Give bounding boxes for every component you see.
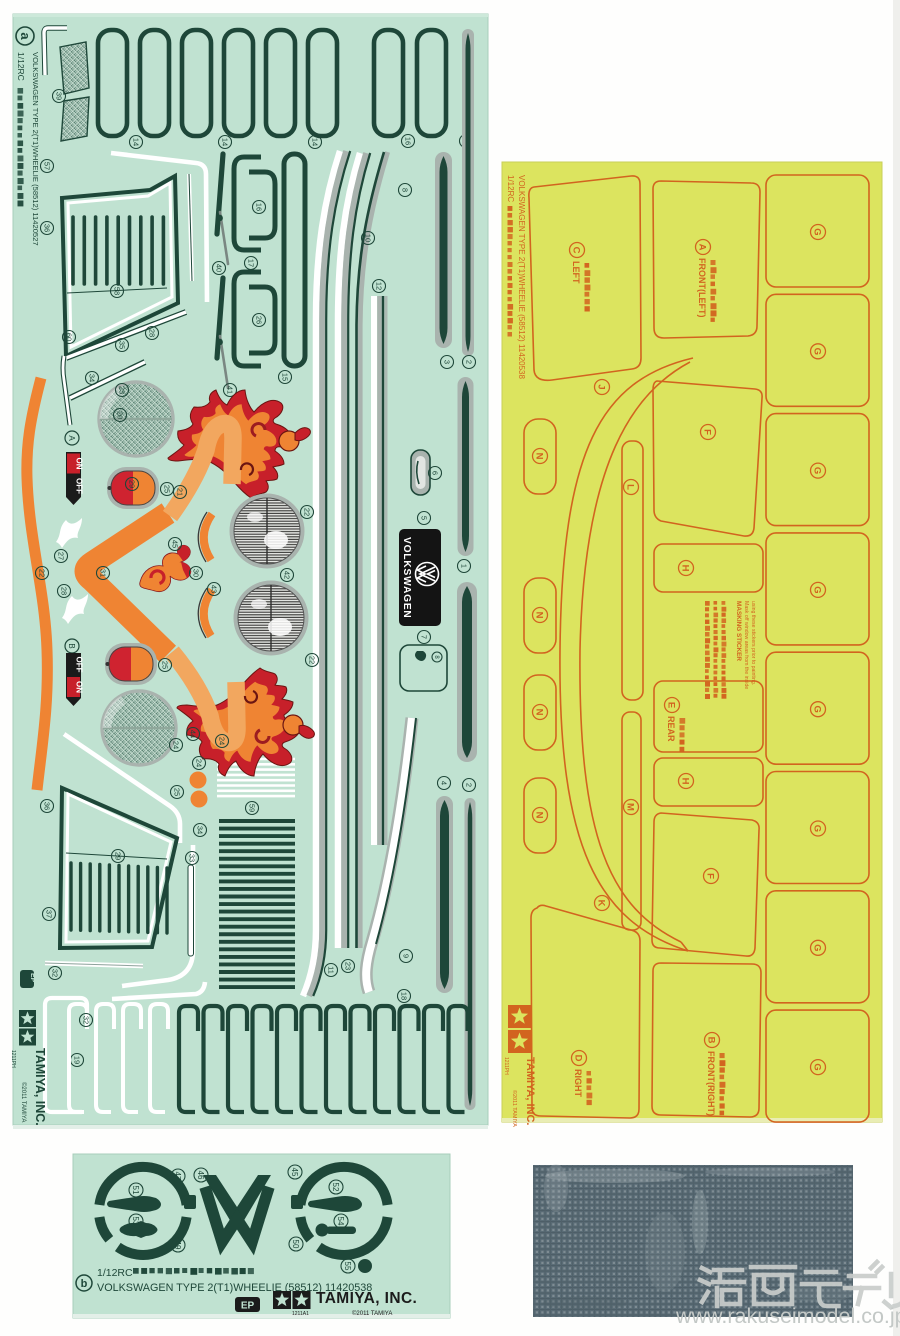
svg-text:K: K [596,900,607,907]
svg-text:31: 31 [98,569,107,577]
svg-text:4: 4 [439,781,448,785]
svg-text:G: G [812,706,823,713]
svg-text:30: 30 [191,569,200,577]
svg-text:OFF: OFF [75,478,84,494]
svg-text:N: N [534,812,545,819]
svg-text:44: 44 [188,730,197,738]
svg-text:1/12RC: 1/12RC [97,1267,133,1279]
svg-text:53: 53 [131,1217,140,1226]
svg-text:25: 25 [162,485,171,493]
svg-text:1211A1: 1211A1 [292,1311,309,1317]
svg-text:12: 12 [374,282,383,290]
svg-text:A: A [697,244,708,251]
svg-text:E: E [666,702,677,708]
svg-text:24: 24 [171,741,180,749]
svg-text:G: G [812,467,823,474]
svg-text:33: 33 [187,854,196,862]
svg-text:25: 25 [172,788,181,796]
svg-text:D: D [573,1055,584,1062]
svg-text:22: 22 [37,569,46,577]
svg-text:H: H [680,565,691,572]
svg-text:2: 2 [464,783,473,787]
svg-text:VOLKSWAGEN TYPE 2(T1)WHEELIE (: VOLKSWAGEN TYPE 2(T1)WHEELIE (58512) 114… [31,52,40,246]
svg-text:23: 23 [343,962,352,970]
svg-text:OFF: OFF [75,657,84,673]
svg-text:1/12RC: 1/12RC [506,175,515,202]
svg-text:www.rakuseimodel.co.jp: www.rakuseimodel.co.jp [675,1304,900,1328]
svg-text:MASKING STICKER: MASKING STICKER [735,601,742,661]
svg-text:N: N [534,709,545,716]
svg-text:22: 22 [302,508,311,516]
svg-text:41: 41 [225,386,234,394]
svg-text:C: C [571,247,582,254]
svg-text:using these stickers prior to: using these stickers prior to painting. [750,601,756,685]
svg-text:25: 25 [160,661,169,669]
svg-text:M: M [625,803,636,811]
svg-text:55: 55 [343,1262,352,1271]
svg-text:15: 15 [280,373,289,381]
svg-text:LEFT: LEFT [571,261,581,284]
svg-text:11: 11 [326,966,335,974]
svg-text:ON: ON [75,458,84,470]
svg-text:ON: ON [75,681,84,693]
svg-text:32: 32 [81,1016,90,1024]
svg-text:22: 22 [307,656,316,664]
svg-text:TAMIYA, INC.: TAMIYA, INC. [524,1057,536,1125]
svg-text:49: 49 [173,1241,182,1250]
svg-text:B: B [67,643,76,648]
svg-text:1211PH: 1211PH [503,1057,509,1075]
svg-text:A: A [67,435,76,441]
svg-text:B: B [706,1037,717,1044]
svg-text:RIGHT: RIGHT [573,1069,583,1098]
svg-text:VOLKSWAGEN TYPE 2(T1)WHEELIE (: VOLKSWAGEN TYPE 2(T1)WHEELIE (58512) 114… [517,175,526,379]
svg-text:32: 32 [50,969,59,977]
svg-text:36: 36 [42,802,51,810]
svg-text:FRONT(LEFT): FRONT(LEFT) [697,258,707,317]
svg-text:©2011 TAMIYA: ©2011 TAMIYA [20,1082,27,1122]
svg-text:1/12RC: 1/12RC [16,52,26,81]
svg-text:24: 24 [194,759,203,767]
svg-text:27: 27 [56,552,65,560]
svg-text:52: 52 [331,1183,340,1192]
svg-text:28: 28 [59,587,68,595]
svg-text:23: 23 [117,386,126,394]
svg-text:35: 35 [117,341,126,349]
svg-text:G: G [812,825,823,832]
svg-text:Mask off window areas from the: Mask off window areas from the inside [743,601,749,689]
svg-text:29: 29 [113,852,122,860]
svg-text:36: 36 [42,224,51,232]
svg-text:43: 43 [209,585,218,593]
svg-text:40: 40 [214,264,223,272]
svg-text:F: F [705,873,716,879]
svg-text:1: 1 [459,564,468,568]
svg-text:29: 29 [127,480,136,488]
svg-text:G: G [812,944,823,951]
svg-text:18: 18 [399,992,408,1000]
svg-text:REAR: REAR [666,716,676,742]
svg-text:58: 58 [112,287,121,295]
svg-text:16: 16 [403,137,412,145]
svg-text:19: 19 [72,1056,81,1064]
svg-text:FRONT(RIGHT): FRONT(RIGHT) [706,1051,716,1116]
svg-text:L: L [625,484,636,490]
svg-text:26: 26 [254,316,263,324]
svg-text:H: H [680,778,691,785]
svg-text:37: 37 [44,910,53,918]
svg-text:G: G [812,228,823,235]
svg-text:G: G [812,1063,823,1070]
svg-text:N: N [534,612,545,619]
svg-text:VOLKSWAGEN: VOLKSWAGEN [401,537,412,619]
svg-text:1211PH: 1211PH [10,1050,16,1068]
svg-text:6: 6 [430,471,439,475]
svg-text:G: G [812,348,823,355]
svg-text:17: 17 [246,259,255,267]
svg-text:©2011 TAMIYA: ©2011 TAMIYA [511,1090,518,1127]
svg-text:28: 28 [147,329,156,337]
svg-text:10: 10 [363,234,372,242]
svg-text:8: 8 [400,188,409,192]
svg-text:45: 45 [290,1168,299,1177]
svg-text:14: 14 [131,138,140,146]
svg-text:60: 60 [64,333,73,341]
svg-text:46: 46 [196,1171,205,1180]
svg-text:34: 34 [87,374,96,382]
svg-text:G: G [812,586,823,593]
svg-text:2: 2 [464,360,473,364]
svg-text:24: 24 [217,737,226,745]
svg-text:51: 51 [131,1186,140,1195]
svg-text:50: 50 [291,1240,300,1249]
svg-text:57: 57 [42,162,51,170]
svg-text:54: 54 [336,1217,345,1226]
svg-text:EP: EP [241,1301,255,1312]
svg-text:14: 14 [220,138,229,146]
svg-text:©2011 TAMIYA: ©2011 TAMIYA [352,1310,392,1317]
svg-text:21: 21 [175,488,184,496]
svg-text:47: 47 [173,1172,182,1181]
svg-text:16: 16 [254,203,263,211]
svg-text:TAMIYA, INC.: TAMIYA, INC. [33,1048,47,1126]
svg-text:9: 9 [401,954,410,958]
svg-text:TAMIYA, INC.: TAMIYA, INC. [316,1290,417,1307]
svg-text:45: 45 [170,540,179,548]
svg-text:7: 7 [419,635,428,639]
svg-text:14: 14 [310,138,319,146]
svg-text:34: 34 [195,826,204,834]
svg-text:5: 5 [419,516,428,520]
svg-text:a: a [18,32,33,40]
svg-text:J: J [596,384,607,389]
svg-text:b: b [81,1278,88,1290]
svg-text:3: 3 [442,360,451,364]
svg-text:20: 20 [115,411,124,419]
svg-text:42: 42 [282,571,291,579]
svg-text:EP: EP [29,973,36,983]
svg-text:59: 59 [247,804,256,812]
svg-text:F: F [702,429,713,435]
svg-text:39: 39 [54,92,63,100]
svg-text:N: N [534,453,545,460]
